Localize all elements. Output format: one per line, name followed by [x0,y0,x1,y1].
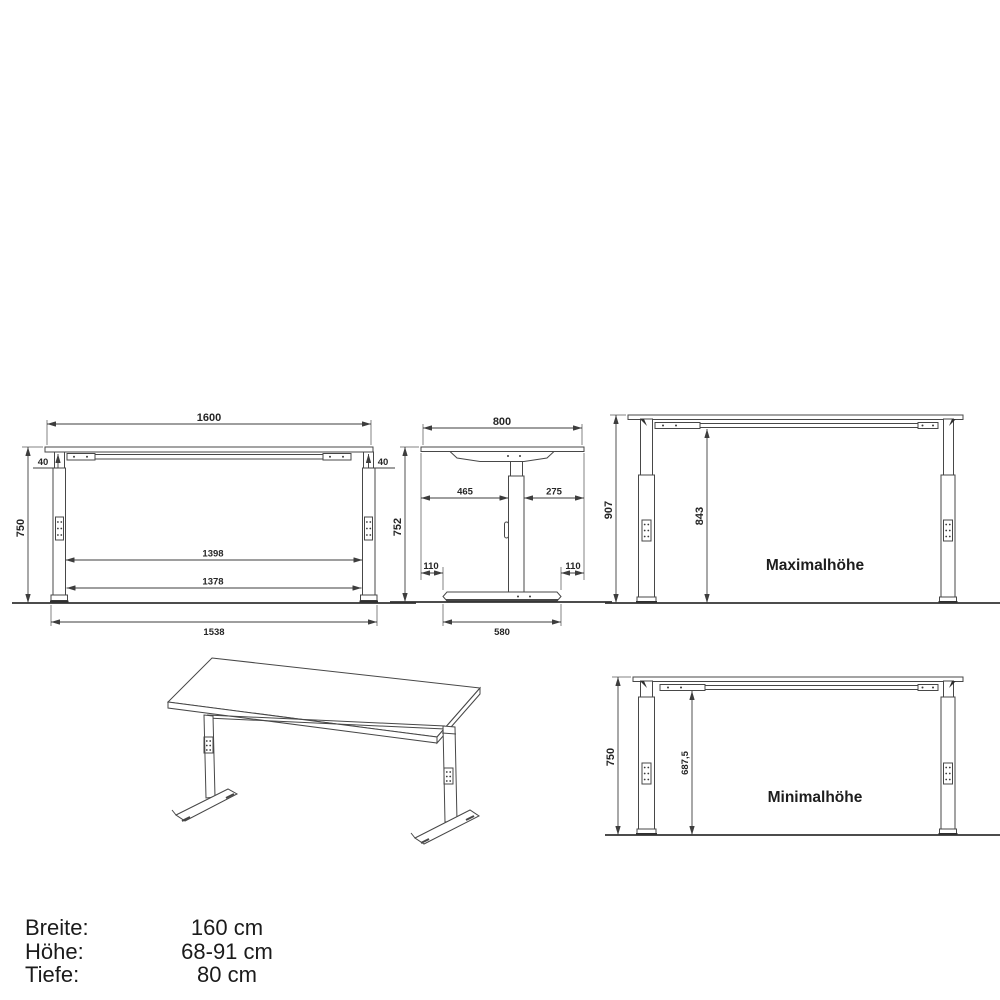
dim-front-top-width: 1600 [197,412,221,424]
dim-max-clearance: 843 [694,507,706,525]
side-view: 800 465 275 752 110 [390,412,612,640]
perspective-right-leg [443,726,457,822]
spec-value-breite: 160 cm [143,916,311,940]
min-view-geometry [605,677,1000,836]
spec-label-breite: Breite: [25,916,143,940]
dim-front-overhang-left: 40 [38,457,49,468]
front-view-dimensions: 1600 40 40 750 1398 1378 [15,412,395,638]
dim-side-depth: 800 [493,416,511,428]
dim-front-foot-span: 1538 [203,627,224,638]
spec-label-hoehe: Höhe: [25,940,143,964]
max-left-leg [641,419,653,475]
dim-front-inner-top: 1398 [202,549,223,560]
technical-drawing-canvas: 1600 40 40 750 1398 1378 [0,0,1000,1000]
max-view-geometry [605,415,1000,604]
spec-value-tiefe: 80 cm [143,963,311,987]
min-view-label: Minimalhöhe [768,789,863,806]
dim-front-overhang-right: 40 [378,457,389,468]
min-height-view: 750 687,5 Minimalhöhe [600,660,1000,860]
spec-row-tiefe: Tiefe: 80 cm [25,963,325,987]
spec-row-breite: Breite: 160 cm [25,916,325,940]
spec-label-tiefe: Tiefe: [25,963,143,987]
spec-row-hoehe: Höhe: 68-91 cm [25,940,325,964]
max-height-view: 907 843 Maximalhöhe [600,398,1000,616]
side-column [511,462,523,477]
front-left-leg [55,452,65,468]
dim-front-height: 750 [15,519,27,537]
dim-side-overhang-front: 110 [423,561,438,572]
dim-side-overhang-back: 110 [565,561,580,572]
min-left-leg [641,681,653,697]
spec-table: Breite: 160 cm Höhe: 68-91 cm Tiefe: 80 … [25,916,325,987]
dim-side-height: 752 [392,518,404,536]
dim-min-total: 750 [605,748,617,766]
front-tabletop [45,447,373,452]
side-tabletop [421,447,584,452]
dim-front-inner-bottom: 1378 [202,577,223,588]
min-tabletop [633,677,963,682]
dim-side-foot-depth: 580 [494,627,510,638]
dim-min-clearance: 687,5 [680,750,691,774]
front-view: 1600 40 40 750 1398 1378 [8,412,420,640]
perspective-left-leg [204,715,215,798]
perspective-view [138,640,540,885]
side-view-geometry [390,447,612,602]
dim-side-col-front: 465 [457,487,474,498]
spec-value-hoehe: 68-91 cm [143,940,311,964]
dim-max-total: 907 [603,501,615,519]
max-right-leg [944,419,954,475]
max-view-label: Maximalhöhe [766,557,865,574]
dim-side-col-back: 275 [546,487,563,498]
max-tabletop [628,415,963,420]
perspective-geometry [168,658,480,844]
